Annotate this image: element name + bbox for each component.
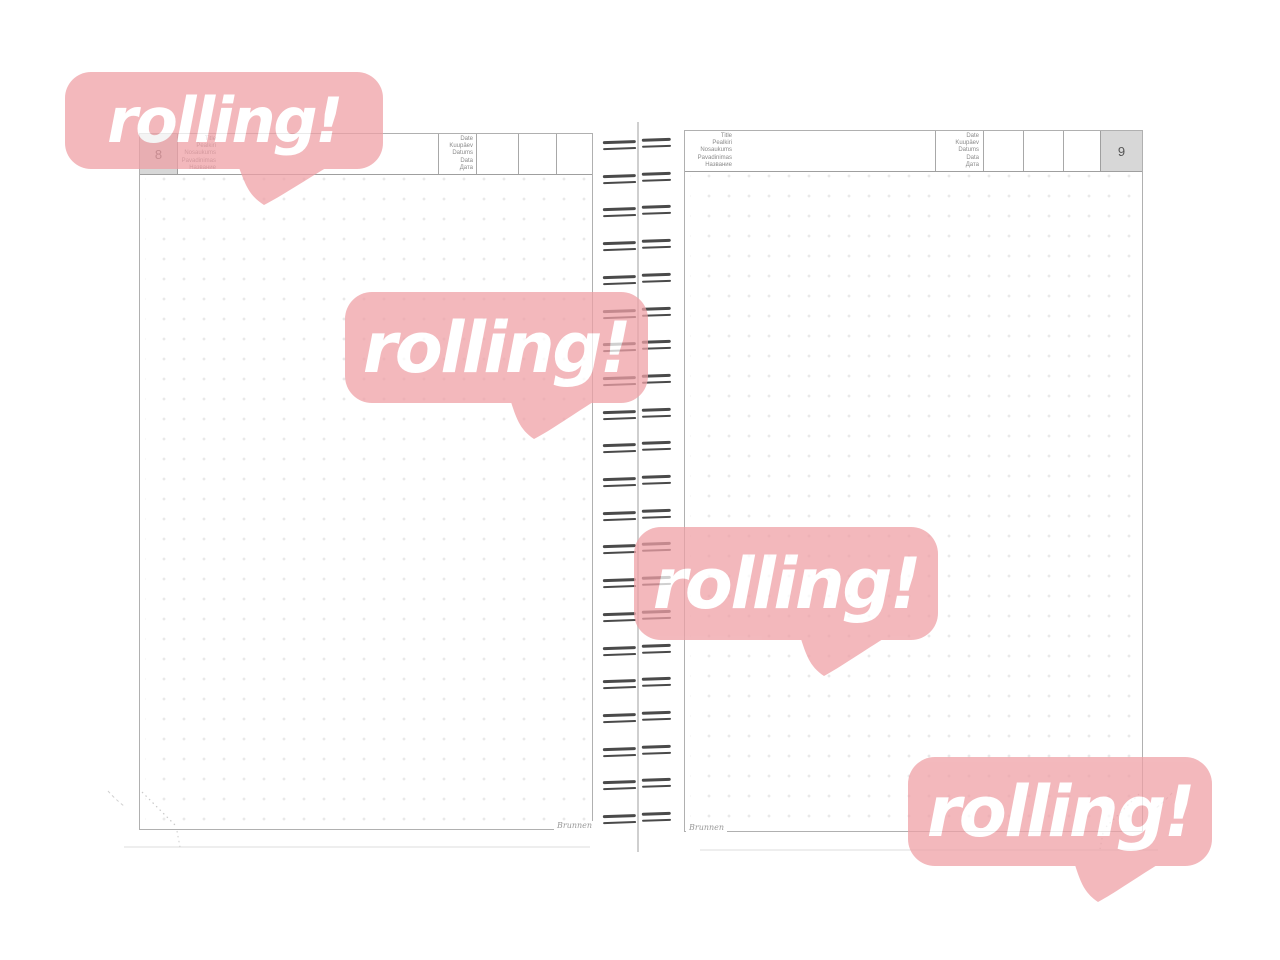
page-curl-left <box>108 791 124 806</box>
perforation-tail-right <box>1100 833 1103 849</box>
wire-loop <box>601 375 672 389</box>
wire-loop <box>601 779 672 793</box>
page-number-box-right: 9 <box>1100 131 1142 171</box>
header-divider <box>556 134 557 174</box>
wire-loop <box>601 240 672 254</box>
wire-loop <box>601 611 672 625</box>
dot-grid-left <box>145 176 587 824</box>
header-divider <box>518 134 519 174</box>
header-divider <box>1023 131 1024 171</box>
header-title-labels-right: Title Pealkiri Nosaukums Pavadinimas Наз… <box>689 133 732 169</box>
header-date-labels-right: Date Kuupäev Datums Data Дата <box>937 133 979 169</box>
page-header-left: 8 Title Pealkiri Nosaukums Pavadinimas Н… <box>140 134 592 175</box>
header-divider <box>983 131 984 171</box>
page-number-right: 9 <box>1118 144 1125 159</box>
wire-loop <box>601 442 672 456</box>
wire-loop <box>601 509 672 523</box>
wire-loop <box>601 139 672 153</box>
wire-loop <box>601 307 672 321</box>
wire-loop <box>601 712 672 726</box>
notebook-page-left: 8 Title Pealkiri Nosaukums Pavadinimas Н… <box>139 133 593 830</box>
header-divider <box>476 134 477 174</box>
wire-loop <box>601 206 672 220</box>
wire-loop <box>601 644 672 658</box>
wire-loop <box>601 678 672 692</box>
wire-loop <box>601 341 672 355</box>
header-date-labels-left: Date Kuupäev Datums Data Дата <box>440 136 473 172</box>
wire-loop <box>601 543 672 557</box>
dot-grid-right <box>690 173 1137 826</box>
spiral-binding <box>601 0 672 960</box>
page-curl-right <box>1156 793 1172 808</box>
header-divider <box>438 134 439 174</box>
wire-loop <box>601 577 672 591</box>
wire-loop <box>601 172 672 186</box>
page-number-box-left: 8 <box>140 134 178 174</box>
header-title-labels-left: Title Pealkiri Nosaukums Pavadinimas Наз… <box>180 136 216 172</box>
page-header-right: Title Pealkiri Nosaukums Pavadinimas Наз… <box>685 131 1142 172</box>
brand-logo-left: Brunnen <box>554 821 595 830</box>
header-divider <box>935 131 936 171</box>
wire-loop <box>601 274 672 288</box>
page-number-left: 8 <box>155 147 162 162</box>
perforation-tail-left <box>177 831 180 847</box>
wire-loop <box>601 813 672 827</box>
notebook-product-photo: 8 Title Pealkiri Nosaukums Pavadinimas Н… <box>0 0 1280 960</box>
wire-loop <box>601 408 672 422</box>
notebook-page-right: Title Pealkiri Nosaukums Pavadinimas Наз… <box>684 130 1143 832</box>
brand-logo-right: Brunnen <box>686 823 727 832</box>
wire-loop <box>601 745 672 759</box>
wire-loop <box>601 476 672 490</box>
header-divider <box>1063 131 1064 171</box>
